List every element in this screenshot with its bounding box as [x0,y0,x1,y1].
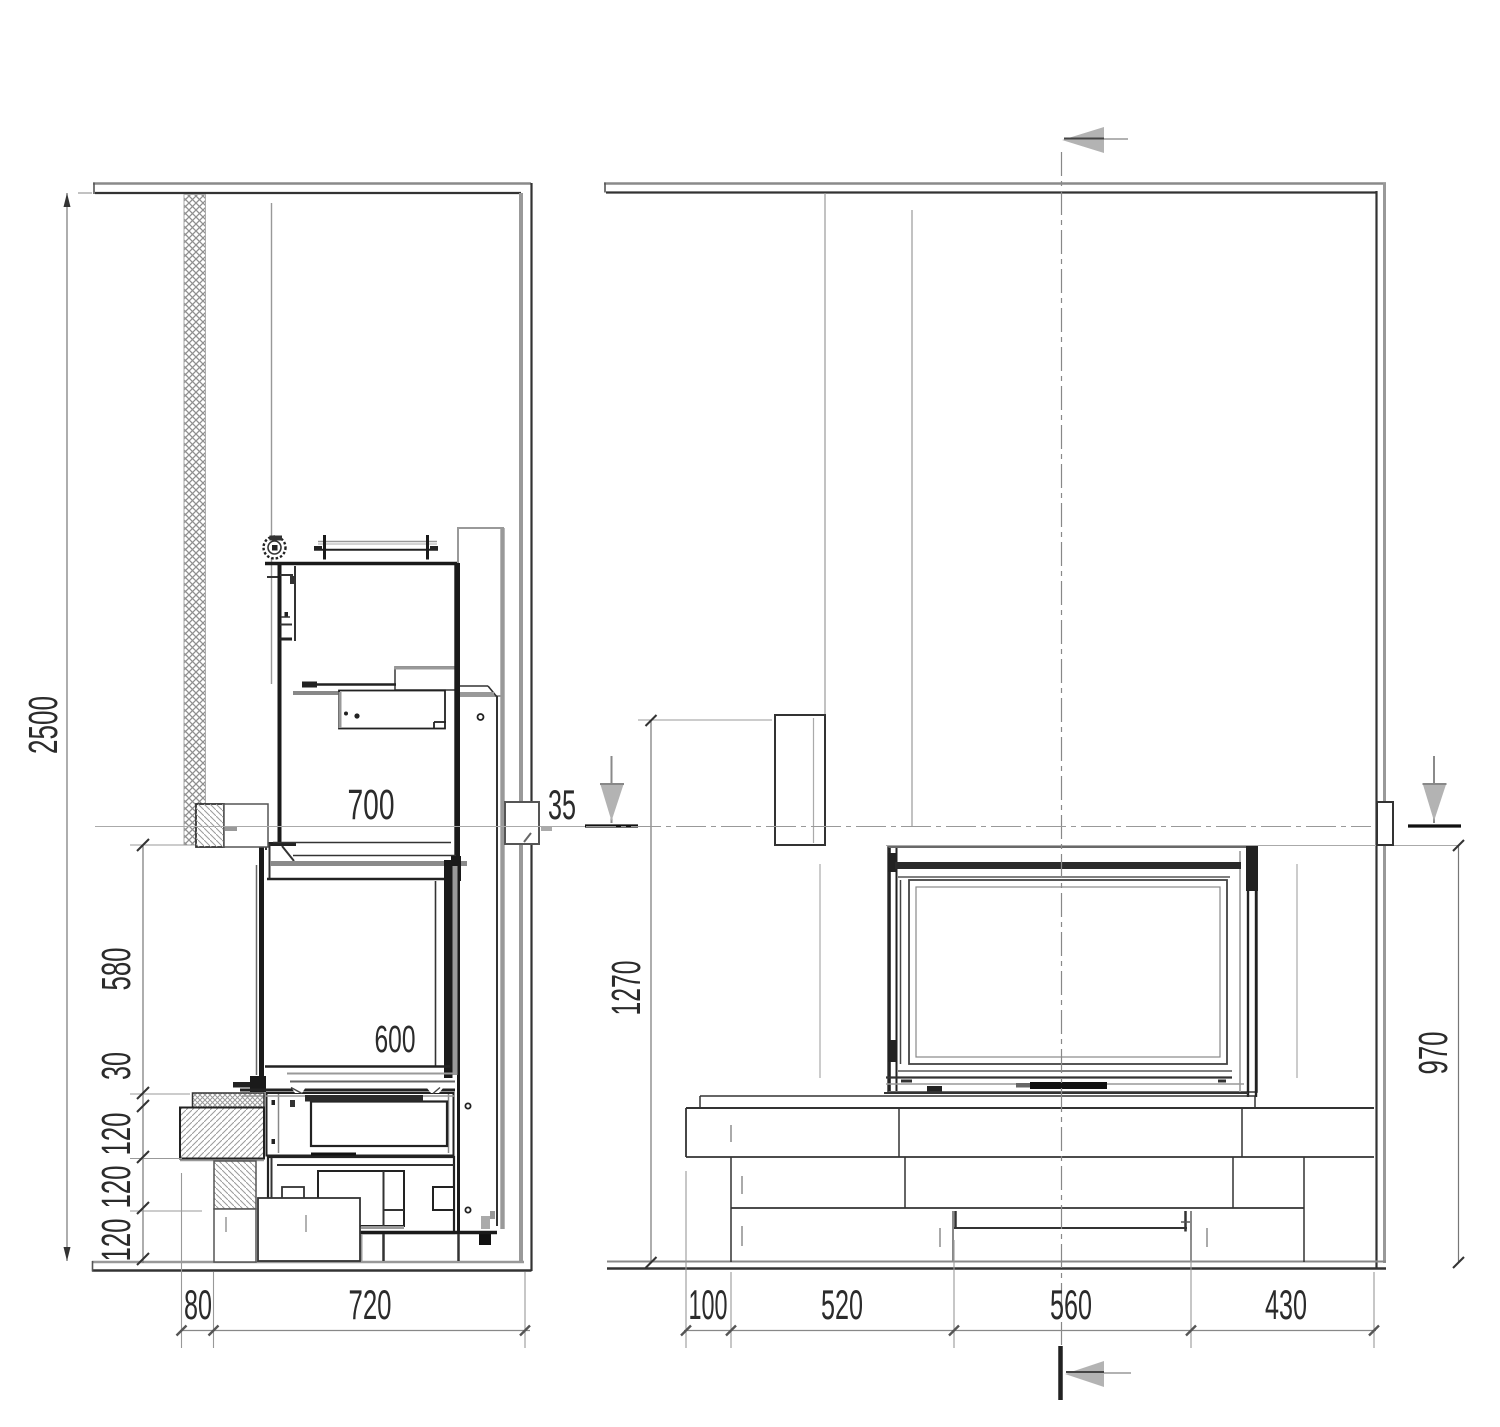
svg-text:2500: 2500 [20,696,66,754]
svg-text:970: 970 [1410,1032,1456,1075]
svg-text:600: 600 [375,1019,416,1061]
svg-text:120: 120 [93,1113,139,1156]
svg-text:1270: 1270 [603,961,649,1016]
svg-text:520: 520 [821,1281,863,1328]
svg-text:700: 700 [348,781,395,829]
svg-text:430: 430 [1265,1281,1307,1328]
svg-text:580: 580 [93,948,139,991]
svg-text:35: 35 [548,781,576,828]
svg-text:120: 120 [93,1166,139,1209]
svg-text:120: 120 [93,1219,139,1262]
svg-text:30: 30 [93,1052,139,1080]
svg-text:100: 100 [689,1281,728,1328]
svg-text:80: 80 [184,1281,212,1328]
svg-text:560: 560 [1050,1281,1092,1328]
svg-text:720: 720 [349,1281,392,1328]
